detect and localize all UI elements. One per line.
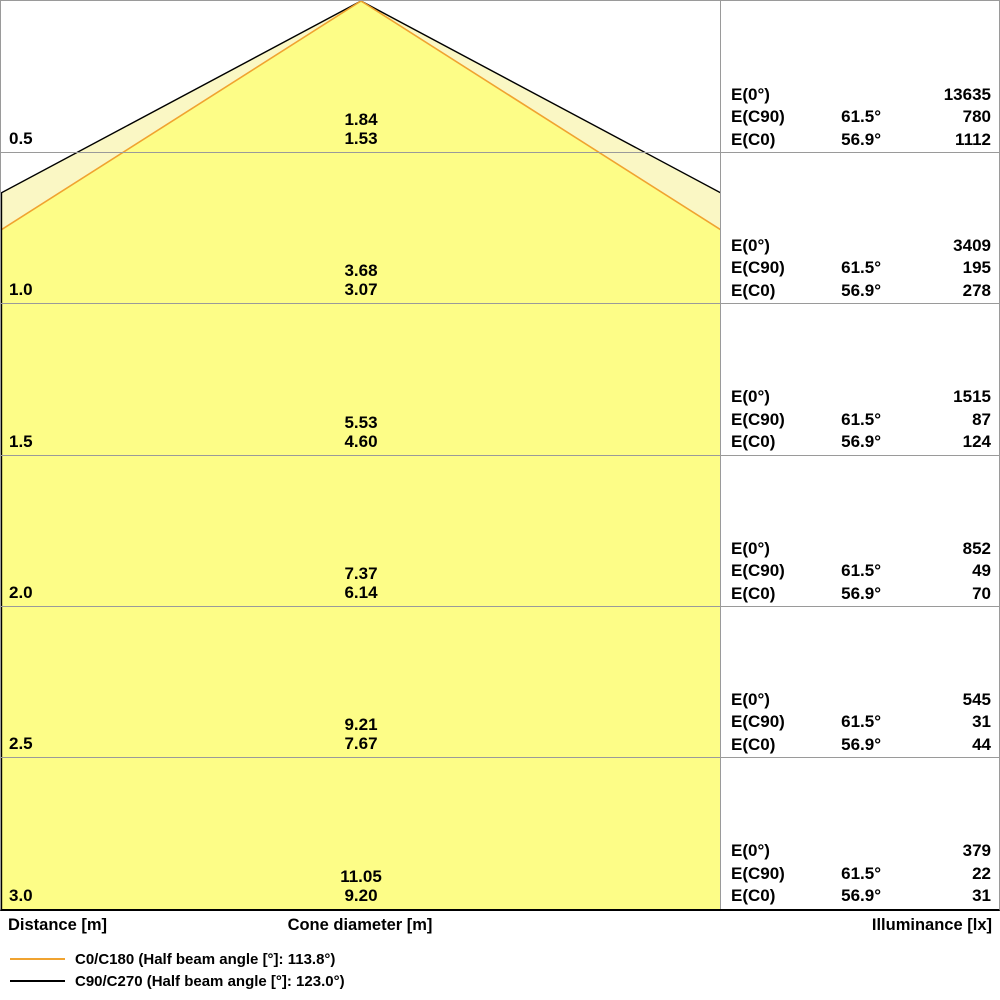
ec90-value: 22	[881, 863, 991, 886]
ec90-label: E(C90)	[731, 711, 811, 734]
band-0.5m: 0.5 1.84 1.53 E(0°)13635 E(C90)61.5°780 …	[1, 1, 999, 153]
ec90-angle: 61.5°	[811, 863, 881, 886]
c0-line-swatch	[10, 958, 65, 960]
e0-value: 1515	[881, 386, 991, 409]
ec90-value: 49	[881, 560, 991, 583]
ec90-label: E(C90)	[731, 560, 811, 583]
cone-diameter-axis-title: Cone diameter [m]	[0, 916, 720, 935]
band-1.0m: 1.0 3.68 3.07 E(0°)3409 E(C90)61.5°195 E…	[1, 152, 999, 304]
axis-headers: Distance [m] Cone diameter [m] Illuminan…	[0, 916, 1000, 936]
legend-label-c0: C0/C180 (Half beam angle [°]: 113.8°)	[75, 951, 335, 968]
legend-label-c90: C90/C270 (Half beam angle [°]: 123.0°)	[75, 973, 345, 990]
cone-diameter-c90: 11.05	[1, 867, 721, 886]
cone-diameter-c0: 7.67	[1, 734, 721, 753]
illuminance-block: E(0°)852 E(C90)61.5°49 E(C0)56.9°70	[731, 538, 991, 606]
cone-diameter-values: 5.53 4.60	[1, 413, 721, 451]
band-3.0m: 3.0 11.05 9.20 E(0°)379 E(C90)61.5°22 E(…	[1, 758, 999, 909]
e0-label: E(0°)	[731, 538, 811, 561]
cone-diameter-c0: 4.60	[1, 432, 721, 451]
ec0-angle: 56.9°	[811, 734, 881, 757]
cone-diameter-c90: 9.21	[1, 715, 721, 734]
ec90-value: 780	[881, 106, 991, 129]
e0-label: E(0°)	[731, 689, 811, 712]
cone-diagram: 0.5 1.84 1.53 E(0°)13635 E(C90)61.5°780 …	[0, 0, 1000, 911]
cone-diameter-c90: 5.53	[1, 413, 721, 432]
ec90-label: E(C90)	[731, 106, 811, 129]
ec0-label: E(C0)	[731, 885, 811, 908]
ec90-label: E(C90)	[731, 863, 811, 886]
ec0-value: 31	[881, 885, 991, 908]
ec90-value: 31	[881, 711, 991, 734]
band-1.5m: 1.5 5.53 4.60 E(0°)1515 E(C90)61.5°87 E(…	[1, 304, 999, 456]
ec90-angle: 61.5°	[811, 711, 881, 734]
band-2.5m: 2.5 9.21 7.67 E(0°)545 E(C90)61.5°31 E(C…	[1, 606, 999, 758]
ec0-value: 124	[881, 431, 991, 454]
e0-label: E(0°)	[731, 840, 811, 863]
cone-diameter-values: 9.21 7.67	[1, 715, 721, 753]
e0-label: E(0°)	[731, 84, 811, 107]
illuminance-block: E(0°)545 E(C90)61.5°31 E(C0)56.9°44	[731, 689, 991, 757]
ec0-angle: 56.9°	[811, 129, 881, 152]
ec0-label: E(C0)	[731, 431, 811, 454]
c90-line-swatch	[10, 980, 65, 982]
ec90-angle: 61.5°	[811, 409, 881, 432]
cone-diameter-c0: 3.07	[1, 280, 721, 299]
e0-value: 545	[881, 689, 991, 712]
illuminance-block: E(0°)3409 E(C90)61.5°195 E(C0)56.9°278	[731, 235, 991, 303]
band-2.0m: 2.0 7.37 6.14 E(0°)852 E(C90)61.5°49 E(C…	[1, 455, 999, 607]
e0-value: 379	[881, 840, 991, 863]
ec0-value: 44	[881, 734, 991, 757]
ec0-value: 278	[881, 280, 991, 303]
cone-diameter-values: 11.05 9.20	[1, 867, 721, 905]
e0-value: 3409	[881, 235, 991, 258]
ec90-label: E(C90)	[731, 257, 811, 280]
ec0-angle: 56.9°	[811, 280, 881, 303]
ec90-angle: 61.5°	[811, 106, 881, 129]
ec0-value: 70	[881, 583, 991, 606]
legend-item-c90: C90/C270 (Half beam angle [°]: 123.0°)	[10, 970, 345, 992]
illuminance-block: E(0°)379 E(C90)61.5°22 E(C0)56.9°31	[731, 840, 991, 908]
cone-diameter-c90: 3.68	[1, 261, 721, 280]
cone-diameter-c90: 1.84	[1, 110, 721, 129]
ec90-value: 87	[881, 409, 991, 432]
cone-diameter-c0: 1.53	[1, 129, 721, 148]
ec90-angle: 61.5°	[811, 257, 881, 280]
e0-label: E(0°)	[731, 386, 811, 409]
ec0-label: E(C0)	[731, 583, 811, 606]
cone-diameter-values: 3.68 3.07	[1, 261, 721, 299]
cone-diameter-c90: 7.37	[1, 564, 721, 583]
illuminance-block: E(0°)13635 E(C90)61.5°780 E(C0)56.9°1112	[731, 84, 991, 152]
ec0-label: E(C0)	[731, 734, 811, 757]
ec0-label: E(C0)	[731, 129, 811, 152]
ec0-label: E(C0)	[731, 280, 811, 303]
cone-diameter-c0: 9.20	[1, 886, 721, 905]
cone-diameter-values: 1.84 1.53	[1, 110, 721, 148]
e0-label: E(0°)	[731, 235, 811, 258]
cone-diameter-c0: 6.14	[1, 583, 721, 602]
illuminance-block: E(0°)1515 E(C90)61.5°87 E(C0)56.9°124	[731, 386, 991, 454]
legend-item-c0: C0/C180 (Half beam angle [°]: 113.8°)	[10, 948, 345, 970]
e0-value: 13635	[881, 84, 991, 107]
legend: C0/C180 (Half beam angle [°]: 113.8°) C9…	[10, 948, 345, 992]
cone-diameter-values: 7.37 6.14	[1, 564, 721, 602]
illuminance-axis-title: Illuminance [lx]	[872, 916, 992, 935]
ec90-angle: 61.5°	[811, 560, 881, 583]
ec90-value: 195	[881, 257, 991, 280]
ec0-angle: 56.9°	[811, 885, 881, 908]
ec0-angle: 56.9°	[811, 431, 881, 454]
ec0-value: 1112	[881, 129, 991, 152]
ec0-angle: 56.9°	[811, 583, 881, 606]
e0-value: 852	[881, 538, 991, 561]
ec90-label: E(C90)	[731, 409, 811, 432]
